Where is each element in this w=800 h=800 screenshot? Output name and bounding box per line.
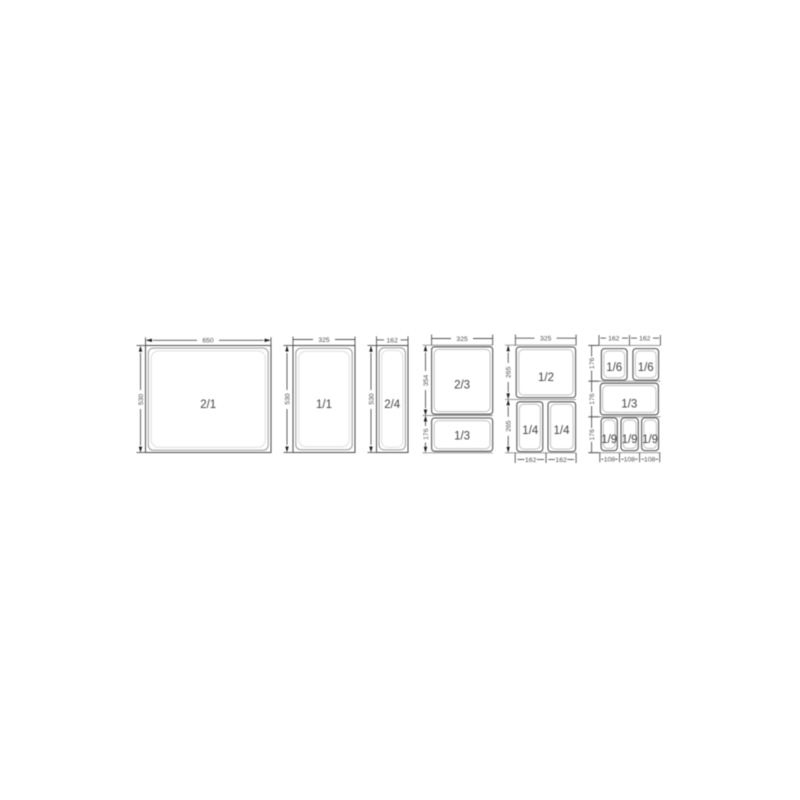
svg-text:1/9: 1/9 — [622, 434, 638, 446]
svg-text:1/9: 1/9 — [601, 434, 617, 446]
svg-text:1/6: 1/6 — [606, 362, 622, 374]
svg-text:354: 354 — [423, 375, 430, 387]
svg-text:162: 162 — [608, 336, 620, 343]
svg-text:325: 325 — [318, 337, 330, 344]
svg-text:108: 108 — [624, 457, 636, 464]
svg-text:325: 325 — [540, 336, 552, 343]
svg-text:650: 650 — [202, 338, 214, 345]
svg-text:265: 265 — [506, 420, 513, 432]
svg-text:1/2: 1/2 — [538, 372, 554, 384]
svg-text:162: 162 — [555, 457, 567, 464]
svg-text:1/4: 1/4 — [554, 425, 571, 437]
svg-text:108: 108 — [644, 457, 656, 464]
svg-text:2/3: 2/3 — [454, 379, 470, 391]
svg-text:1/1: 1/1 — [316, 399, 332, 411]
svg-text:325: 325 — [456, 336, 468, 343]
svg-text:108: 108 — [604, 457, 616, 464]
svg-text:1/3: 1/3 — [454, 431, 470, 443]
svg-text:176: 176 — [423, 428, 430, 440]
svg-text:1/9: 1/9 — [642, 434, 658, 446]
svg-text:1/3: 1/3 — [621, 399, 637, 411]
svg-text:176: 176 — [589, 429, 596, 441]
svg-text:1/6: 1/6 — [638, 362, 654, 374]
svg-text:530: 530 — [284, 393, 291, 405]
svg-text:162: 162 — [387, 337, 399, 344]
svg-text:530: 530 — [368, 393, 375, 405]
svg-text:2/4: 2/4 — [384, 399, 401, 411]
svg-text:530: 530 — [138, 394, 145, 406]
svg-text:1/4: 1/4 — [522, 425, 539, 437]
svg-text:176: 176 — [589, 358, 596, 370]
svg-text:265: 265 — [506, 366, 513, 378]
svg-text:162: 162 — [639, 336, 651, 343]
svg-text:162: 162 — [525, 457, 537, 464]
svg-text:176: 176 — [589, 393, 596, 405]
svg-text:2/1: 2/1 — [200, 399, 216, 411]
